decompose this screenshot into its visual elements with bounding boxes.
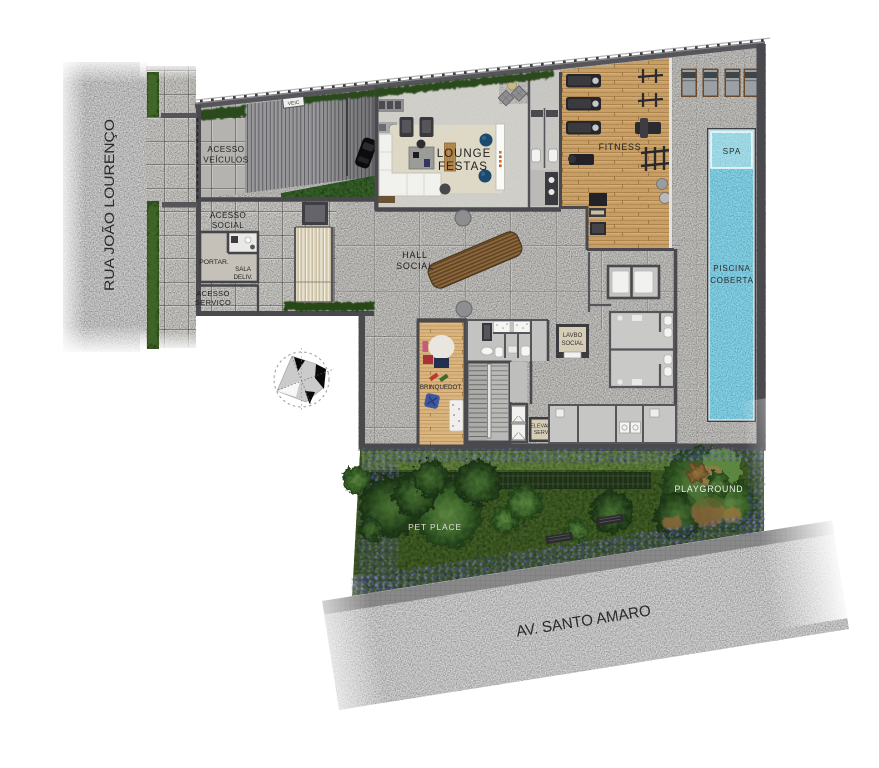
svg-text:RUA JOÃO LOURENÇO: RUA JOÃO LOURENÇO: [102, 119, 117, 291]
svg-text:SERV.: SERV.: [534, 430, 550, 436]
svg-text:ACESSO: ACESSO: [207, 145, 244, 154]
svg-text:SOCIAL: SOCIAL: [396, 261, 434, 271]
svg-text:HALL: HALL: [402, 250, 428, 260]
svg-text:PET PLACE: PET PLACE: [408, 522, 462, 532]
svg-text:SALA: SALA: [235, 266, 252, 273]
svg-text:VEÍCULOS: VEÍCULOS: [203, 155, 248, 165]
svg-text:PLAYGROUND: PLAYGROUND: [675, 484, 744, 494]
svg-text:ACESSO: ACESSO: [196, 289, 230, 298]
svg-text:SOCIAL: SOCIAL: [212, 221, 244, 230]
svg-text:COBERTA: COBERTA: [710, 276, 754, 285]
svg-text:SOCIAL: SOCIAL: [561, 341, 584, 347]
svg-text:PISCINA: PISCINA: [713, 264, 751, 273]
svg-text:LAVBO: LAVBO: [563, 333, 583, 339]
svg-text:FITNESS: FITNESS: [599, 142, 642, 152]
svg-text:LOUNGE: LOUNGE: [437, 148, 492, 160]
svg-text:PORTAR.: PORTAR.: [199, 259, 229, 266]
svg-text:SERVIÇO: SERVIÇO: [195, 298, 231, 307]
svg-text:DELIV.: DELIV.: [233, 274, 252, 281]
svg-text:BRINQUEDOT.: BRINQUEDOT.: [420, 384, 463, 391]
svg-text:ACESSO: ACESSO: [210, 211, 246, 220]
svg-text:SPA: SPA: [723, 147, 741, 156]
svg-text:FESTAS: FESTAS: [438, 161, 488, 173]
